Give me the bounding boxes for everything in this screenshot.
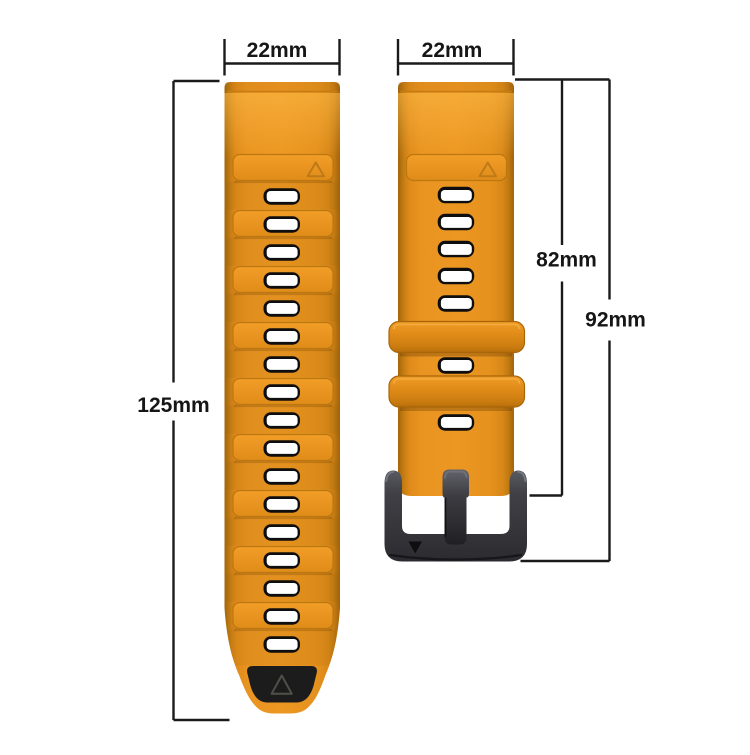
svg-text:125mm: 125mm <box>137 394 209 417</box>
svg-text:92mm: 92mm <box>585 309 646 332</box>
svg-text:22mm: 22mm <box>247 39 308 62</box>
svg-text:22mm: 22mm <box>422 39 483 62</box>
svg-text:82mm: 82mm <box>536 249 597 272</box>
